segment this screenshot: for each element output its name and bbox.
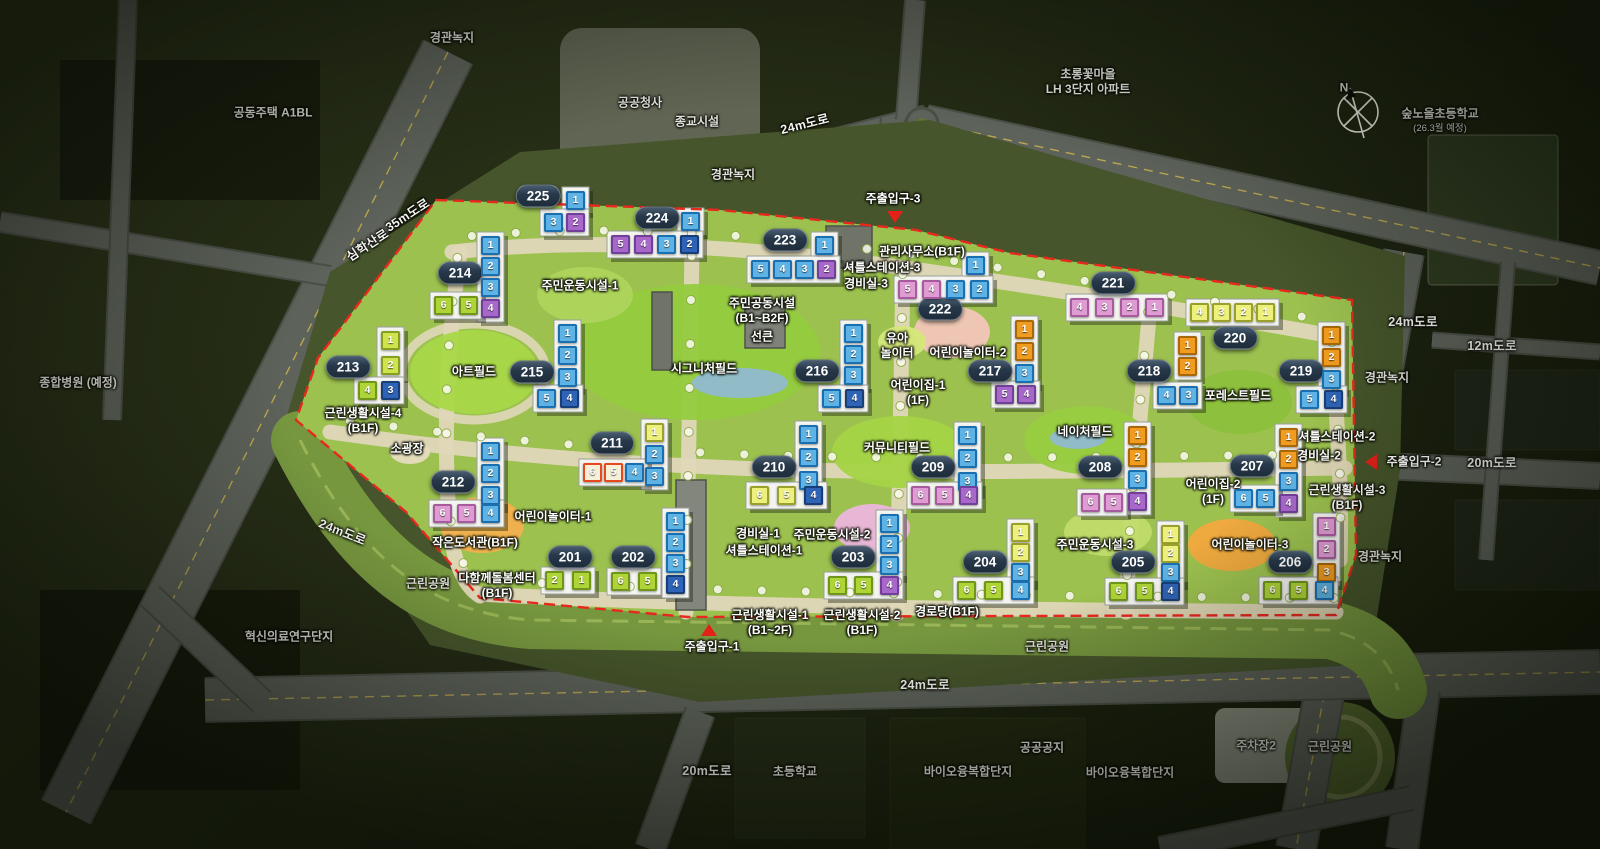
area-label: 공동주택 A1BL: [234, 106, 313, 121]
unit-chip: 1: [666, 512, 685, 531]
unit-chip: 2: [666, 533, 685, 552]
area-label: 공공청사: [618, 96, 662, 111]
unit-chip: 5: [984, 581, 1003, 600]
unit-chip: 4: [922, 280, 941, 299]
area-label: 초등학교: [773, 765, 817, 780]
facility-label: 어린이놀이터-1: [515, 510, 592, 525]
unit-chip: 3: [1212, 303, 1231, 322]
unit-chip: 3: [1161, 563, 1180, 582]
area-label: 바이오융복합단지: [924, 765, 1012, 780]
area-label: 경관녹지: [430, 31, 474, 46]
unit-chip: 2: [799, 448, 818, 467]
unit-chip: 4: [481, 504, 500, 523]
unit-chip: 4: [804, 486, 823, 505]
facility-label: 셔틀스테이션-3: [844, 261, 921, 276]
unit-chip: 4: [1157, 386, 1176, 405]
unit-chip: 2: [844, 345, 863, 364]
unit-chip: 1: [799, 425, 818, 444]
entrance-label: 주출입구-2: [1387, 455, 1442, 470]
road-label: 20m도로: [1467, 456, 1517, 472]
unit-chip: 1: [1128, 426, 1147, 445]
facility-label: 다함께돌봄센터 (B1F): [458, 571, 535, 601]
facility-label: 셔틀스테이션-1: [726, 544, 803, 559]
unit-chip: 1: [1279, 428, 1298, 447]
unit-chip: 5: [604, 463, 623, 482]
unit-chip: 2: [558, 346, 577, 365]
unit-chip: 1: [645, 423, 664, 442]
facility-label: 근린생활시설-3 (B1F): [1309, 483, 1386, 513]
unit-chip: 5: [854, 576, 873, 595]
unit-chip: 2: [1128, 448, 1147, 467]
building-badge-206: 206: [1268, 551, 1313, 574]
unit-chip: 1: [1178, 336, 1197, 355]
unit-chip: 5: [1300, 390, 1319, 409]
road-label: 24m도로: [316, 516, 368, 549]
unit-chip: 6: [911, 486, 930, 505]
building-badge-217: 217: [968, 360, 1013, 383]
unit-chip: 5: [611, 235, 630, 254]
facility-label: 포레스트필드: [1205, 389, 1271, 404]
unit-chip: 3: [645, 467, 664, 486]
area-label: (26.3월 예정): [1413, 123, 1467, 135]
facility-label: 경비실-2: [1297, 449, 1341, 464]
unit-chip: 3: [381, 381, 400, 400]
road-label: 24m도로: [900, 678, 950, 694]
unit-chip: 5: [1104, 493, 1123, 512]
area-label: 바이오융복합단지: [1086, 766, 1174, 781]
unit-chip: 5: [751, 260, 770, 279]
unit-chip: 1: [1322, 326, 1341, 345]
unit-chip: 4: [1315, 581, 1334, 600]
unit-chip: 3: [880, 556, 899, 575]
unit-chip: 3: [1279, 472, 1298, 491]
unit-chip: 3: [481, 486, 500, 505]
unit-chip: 2: [1011, 543, 1030, 562]
facility-label: 경비실-3: [844, 277, 888, 292]
entrance-arrow-icon: [1365, 454, 1377, 470]
facility-label: 근린생활시설-1 (B1~2F): [732, 608, 809, 638]
area-label: 경관녹지: [1365, 371, 1409, 386]
building-badge-213: 213: [326, 356, 371, 379]
area-label: 숲노을초등학교: [1401, 107, 1478, 122]
unit-chip: 3: [657, 235, 676, 254]
unit-chip: 6: [1263, 581, 1282, 600]
road-label: 20m도로: [682, 764, 732, 780]
unit-chip: 4: [1011, 581, 1030, 600]
facility-label: 관리사무소(B1F): [879, 245, 965, 260]
unit-chip: 2: [481, 464, 500, 483]
unit-chip: 1: [1015, 320, 1034, 339]
unit-chip: 2: [1120, 298, 1139, 317]
entrance-label: 주출입구-1: [685, 640, 740, 655]
unit-chip: 3: [1095, 298, 1114, 317]
unit-chip: 4: [666, 575, 685, 594]
facility-label: 경로당(B1F): [915, 605, 979, 620]
unit-chip: 1: [558, 324, 577, 343]
building-badge-223: 223: [763, 229, 808, 252]
area-label: 초롱꽃마을 LH 3단지 아파트: [1046, 67, 1131, 97]
road-label: 24m도로: [1388, 315, 1438, 331]
unit-chip: 2: [1015, 342, 1034, 361]
building-badge-218: 218: [1127, 360, 1172, 383]
building-badge-219: 219: [1279, 360, 1324, 383]
unit-chip: 2: [1322, 348, 1341, 367]
unit-chip: 1: [1256, 303, 1275, 322]
unit-chip: 6: [611, 572, 630, 591]
unit-chip: 4: [358, 381, 377, 400]
facility-label: 어린이놀이터-2: [930, 346, 1007, 361]
unit-chip: 3: [1179, 386, 1198, 405]
unit-chip: 4: [1324, 390, 1343, 409]
area-label: 근린공원: [1308, 740, 1352, 755]
unit-chip: 5: [995, 385, 1014, 404]
entrance-label: 주출입구-3: [866, 192, 921, 207]
building-badge-212: 212: [431, 471, 476, 494]
road-label: 심학산로: [344, 227, 392, 266]
unit-chip: 5: [935, 486, 954, 505]
unit-chip: 1: [481, 442, 500, 461]
unit-chip: 5: [459, 296, 478, 315]
unit-chip: 2: [1279, 450, 1298, 469]
building-badge-205: 205: [1111, 551, 1156, 574]
unit-chip: 3: [1011, 563, 1030, 582]
facility-label: 작은도서관(B1F): [432, 536, 518, 551]
unit-chip: 4: [634, 235, 653, 254]
road-label: 35m도로: [383, 196, 433, 236]
unit-chip: 1: [966, 256, 985, 275]
unit-chip: 5: [777, 486, 796, 505]
unit-chip: 6: [750, 486, 769, 505]
unit-chip: 3: [1128, 470, 1147, 489]
unit-chip: 2: [817, 260, 836, 279]
unit-chip: 2: [1161, 544, 1180, 563]
unit-chip: 1: [566, 191, 585, 210]
entrance-arrow-icon: [887, 211, 903, 223]
unit-chip: 3: [1317, 563, 1336, 582]
unit-chip: 2: [958, 449, 977, 468]
facility-label: 경비실-1: [736, 527, 780, 542]
unit-chip: 4: [880, 576, 899, 595]
unit-chip: 2: [1178, 357, 1197, 376]
unit-chip: 3: [1322, 370, 1341, 389]
facility-label: 셔틀스테이션-2: [1299, 430, 1376, 445]
unit-chip: 1: [572, 571, 591, 590]
unit-chip: 4: [845, 389, 864, 408]
building-badge-204: 204: [963, 551, 1008, 574]
building-badge-214: 214: [438, 262, 483, 285]
unit-chip: 5: [1135, 582, 1154, 601]
unit-chip: 5: [1256, 489, 1275, 508]
unit-chip: 4: [1128, 492, 1147, 511]
unit-chip: 2: [545, 571, 564, 590]
area-label: 경관녹지: [1358, 550, 1402, 565]
facility-label: 커뮤니티필드: [864, 441, 930, 456]
building-badge-220: 220: [1213, 327, 1258, 350]
area-label: 근린공원: [1025, 640, 1069, 655]
unit-chip: 4: [1190, 303, 1209, 322]
facility-label: 주민운동시설-2: [794, 528, 871, 543]
unit-chip: 5: [537, 389, 556, 408]
unit-chip: 2: [566, 213, 585, 232]
unit-chip: 1: [1161, 525, 1180, 544]
building-badge-209: 209: [911, 456, 956, 479]
area-label: 경관녹지: [711, 168, 755, 183]
area-label: 혁신의료연구단지: [245, 630, 333, 645]
area-label: 주차장2: [1236, 739, 1276, 754]
unit-chip: 3: [795, 260, 814, 279]
unit-chip: 3: [666, 554, 685, 573]
building-badge-203: 203: [831, 546, 876, 569]
facility-label: 선큰: [751, 330, 773, 345]
apartment-site-plan: N 경관녹지공동주택 A1BL공공청사종교시설24m도로경관녹지초롱꽃마을 LH…: [0, 0, 1600, 849]
unit-chip: 6: [828, 576, 847, 595]
facility-label: 어린이집-1 (1F): [891, 378, 946, 408]
unit-chip: 4: [1161, 582, 1180, 601]
unit-chip: 4: [560, 389, 579, 408]
facility-label: 근린생활시설-4 (B1F): [325, 406, 402, 436]
building-badge-222: 222: [918, 298, 963, 321]
unit-chip: 5: [898, 280, 917, 299]
facility-label: 주민공동시설 (B1~B2F): [729, 296, 795, 326]
unit-chip: 2: [880, 535, 899, 554]
unit-chip: 5: [457, 504, 476, 523]
unit-chip: 3: [844, 366, 863, 385]
building-badge-207: 207: [1230, 455, 1275, 478]
unit-chip: 3: [544, 213, 563, 232]
unit-chip: 2: [645, 445, 664, 464]
unit-chip: 5: [638, 572, 657, 591]
unit-chip: 2: [481, 257, 500, 276]
facility-label: 소광장: [390, 442, 423, 457]
area-label: 근린공원: [406, 577, 450, 592]
facility-label: 유아 놀이터: [880, 331, 913, 361]
facility-label: 아트필드: [452, 365, 496, 380]
unit-chip: 1: [815, 236, 834, 255]
building-badge-215: 215: [510, 361, 555, 384]
labels-layer: N 경관녹지공동주택 A1BL공공청사종교시설24m도로경관녹지초롱꽃마을 LH…: [0, 0, 1600, 849]
building-badge-208: 208: [1078, 456, 1123, 479]
building-badge-216: 216: [795, 360, 840, 383]
unit-chip: 1: [481, 236, 500, 255]
unit-chip: 6: [957, 581, 976, 600]
unit-chip: 4: [1070, 298, 1089, 317]
unit-chip: 1: [958, 426, 977, 445]
building-badge-225: 225: [516, 185, 561, 208]
facility-label: 근린생활시설-2 (B1F): [824, 608, 901, 638]
building-badge-221: 221: [1091, 272, 1136, 295]
unit-chip: 2: [1234, 303, 1253, 322]
unit-chip: 2: [1317, 540, 1336, 559]
unit-chip: 6: [433, 504, 452, 523]
compass-north-label: N: [1340, 81, 1349, 96]
building-badge-202: 202: [611, 546, 656, 569]
unit-chip: 6: [1109, 582, 1128, 601]
unit-chip: 3: [481, 278, 500, 297]
unit-chip: 4: [481, 299, 500, 318]
unit-chip: 3: [558, 368, 577, 387]
unit-chip: 2: [970, 280, 989, 299]
unit-chip: 1: [1145, 298, 1164, 317]
entrance-arrow-icon: [701, 624, 717, 636]
unit-chip: 4: [625, 463, 644, 482]
unit-chip: 1: [381, 331, 400, 350]
road-label: 24m도로: [779, 111, 831, 138]
unit-chip: 6: [1234, 489, 1253, 508]
unit-chip: 1: [681, 212, 700, 231]
unit-chip: 5: [1289, 581, 1308, 600]
building-badge-201: 201: [548, 546, 593, 569]
unit-chip: 3: [946, 280, 965, 299]
unit-chip: 6: [434, 296, 453, 315]
facility-label: 시그니처필드: [671, 362, 737, 377]
unit-chip: 2: [381, 356, 400, 375]
building-badge-211: 211: [590, 432, 634, 455]
unit-chip: 2: [680, 235, 699, 254]
unit-chip: 3: [1015, 364, 1034, 383]
area-label: 공공공지: [1020, 741, 1064, 756]
unit-chip: 4: [773, 260, 792, 279]
unit-chip: 6: [583, 463, 602, 482]
facility-label: 네이처필드: [1057, 425, 1112, 440]
area-label: 종교시설: [675, 115, 719, 130]
facility-label: 주민운동시설-1: [542, 279, 619, 294]
area-label: 종합병원 (예정): [39, 376, 117, 391]
unit-chip: 4: [1017, 385, 1036, 404]
building-badge-210: 210: [752, 456, 797, 479]
unit-chip: 5: [822, 389, 841, 408]
unit-chip: 1: [1011, 523, 1030, 542]
unit-chip: 4: [959, 486, 978, 505]
facility-label: 어린이집-2 (1F): [1186, 477, 1241, 507]
unit-chip: 1: [1317, 517, 1336, 536]
road-label: 12m도로: [1467, 339, 1517, 355]
unit-chip: 4: [1279, 494, 1298, 513]
unit-chip: 1: [844, 324, 863, 343]
unit-chip: 1: [880, 514, 899, 533]
building-badge-224: 224: [635, 207, 680, 230]
unit-chip: 6: [1081, 493, 1100, 512]
